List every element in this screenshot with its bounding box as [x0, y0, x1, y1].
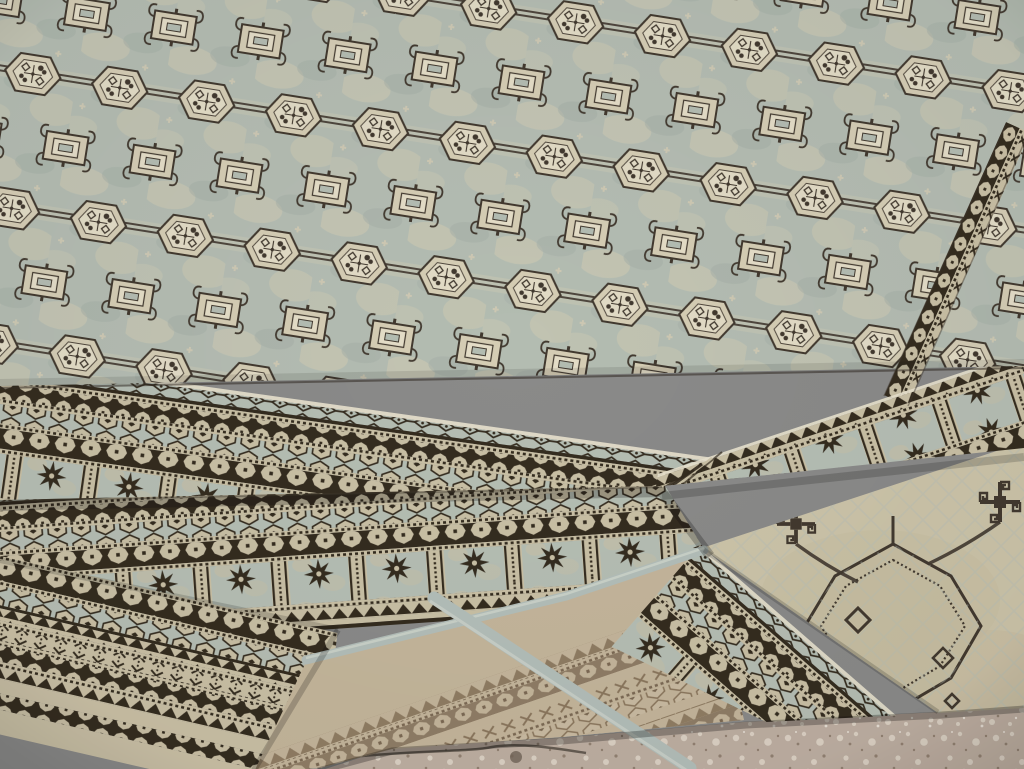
- vignette: [0, 0, 1024, 769]
- rug-photograph: A pale celadon grey-green carpet field c…: [0, 0, 1024, 769]
- rug-photo-canvas: Vintage Turkoman Bokhara style carpet wi…: [0, 0, 1024, 769]
